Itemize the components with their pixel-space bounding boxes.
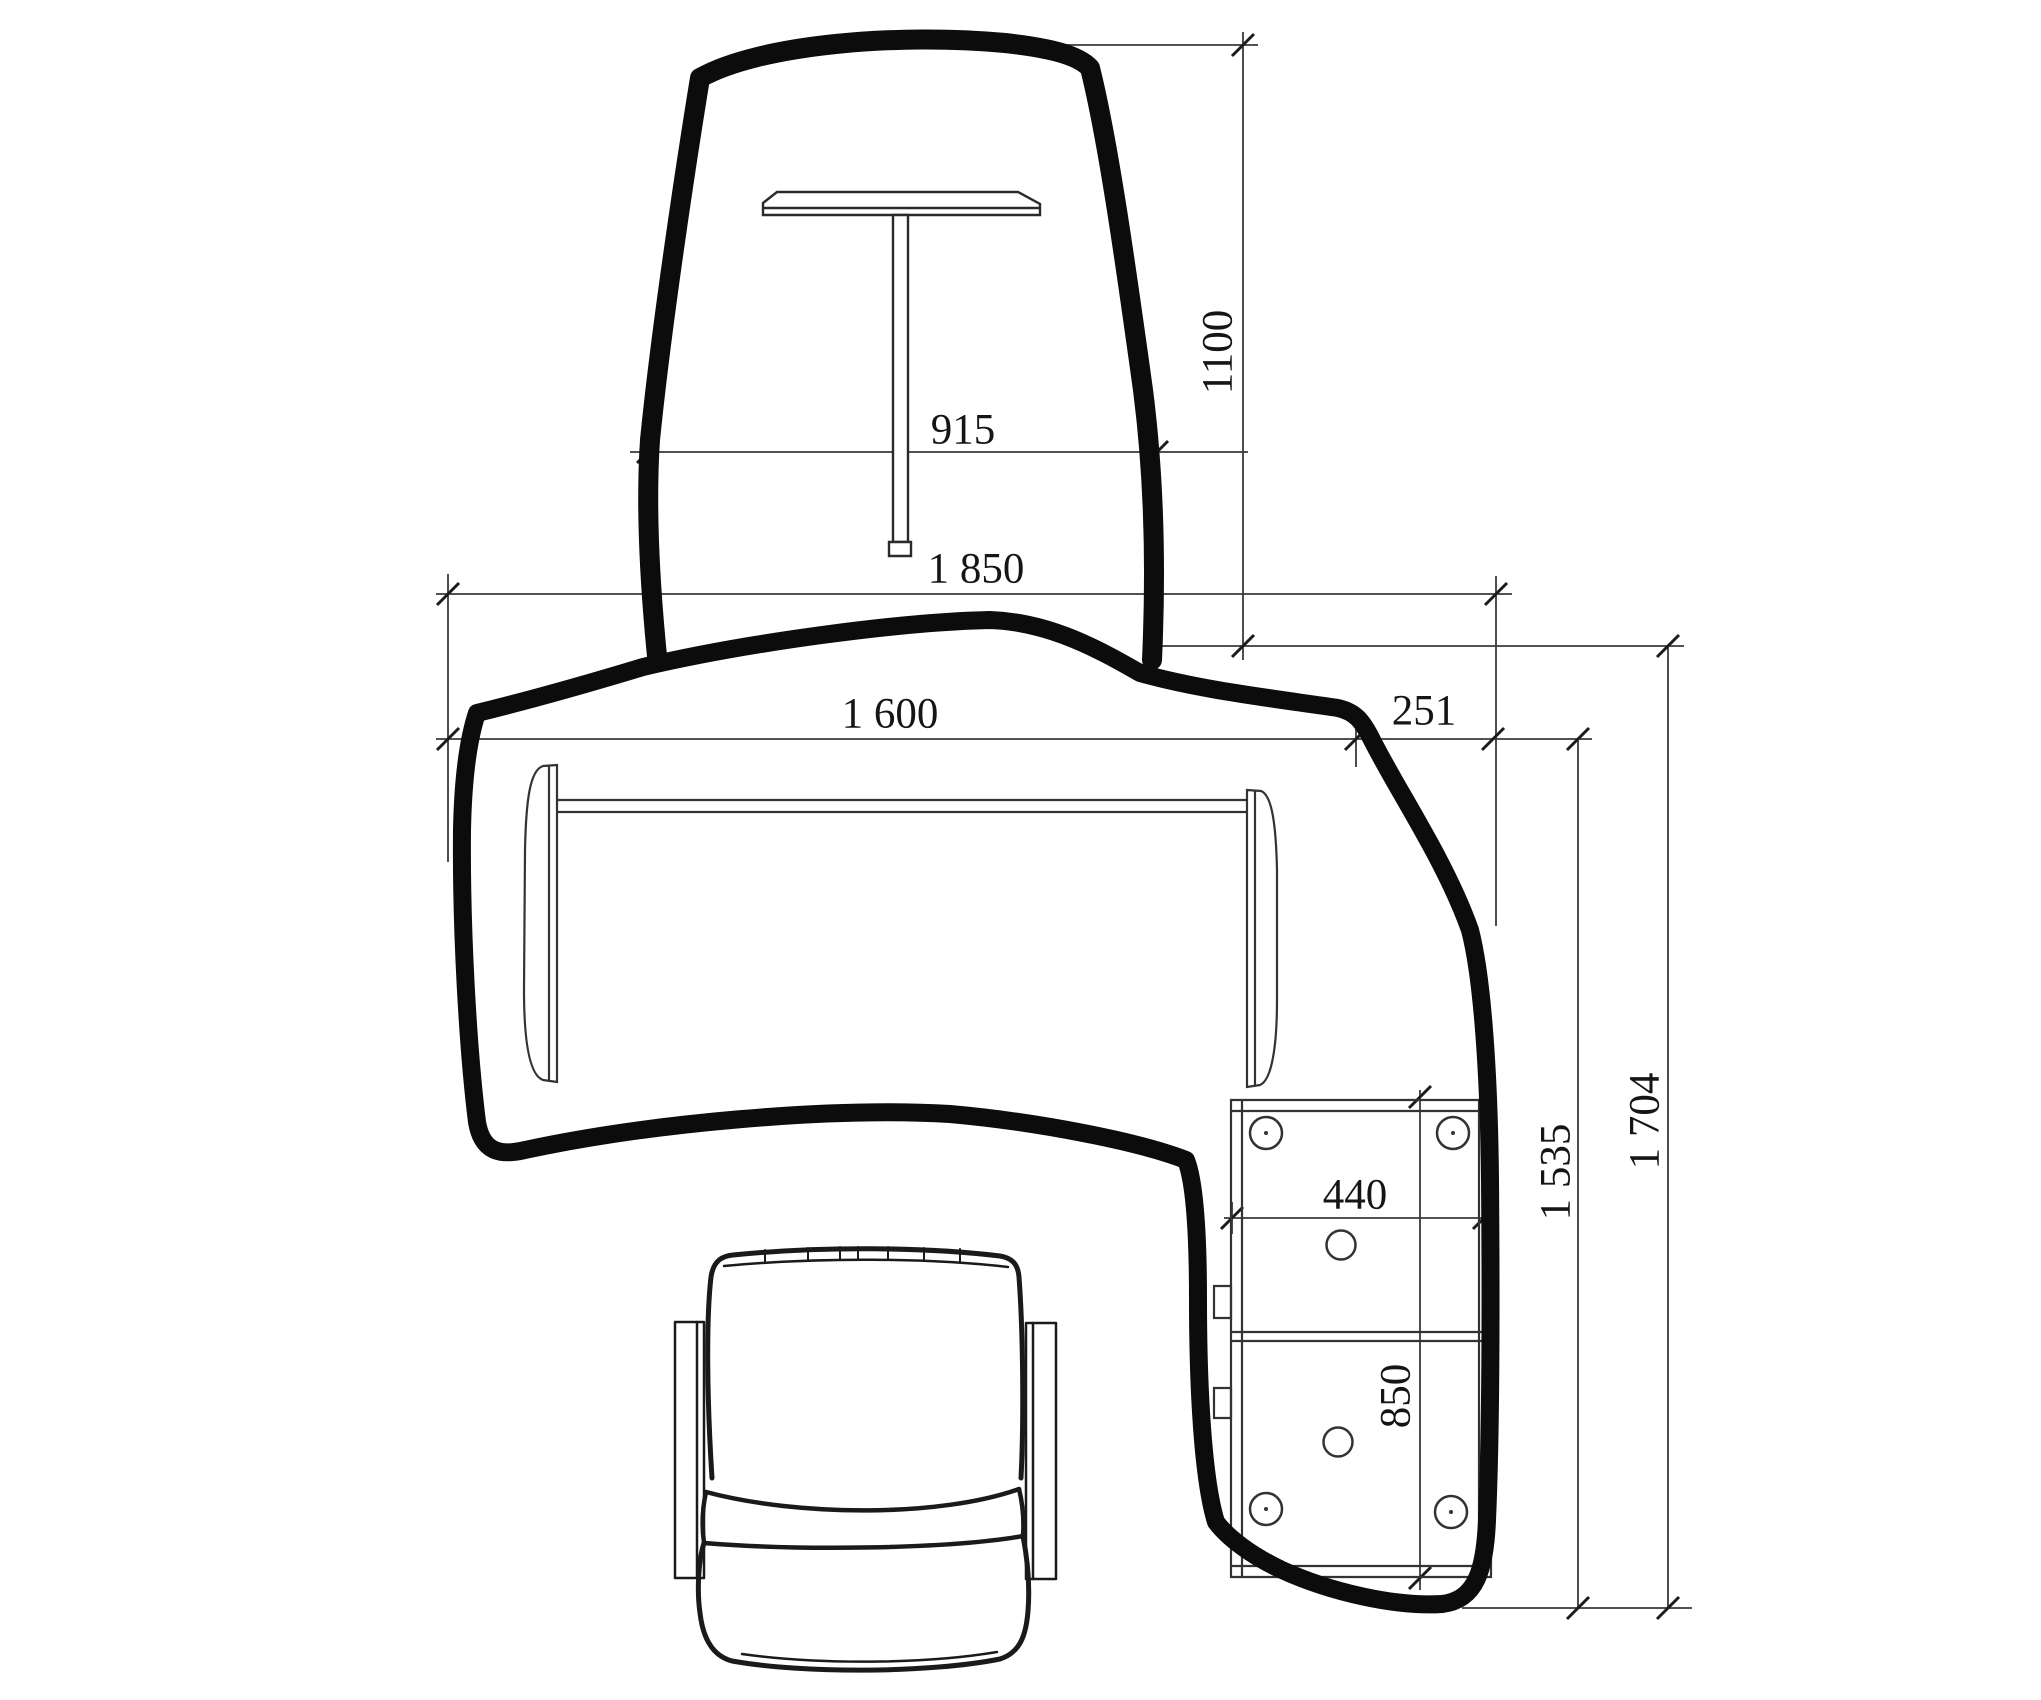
backrest-seam (724, 1260, 1008, 1267)
dimension-lines (436, 32, 1692, 1608)
left-leg-pad (524, 765, 557, 1082)
drawer-hole (1327, 1231, 1356, 1260)
monitor-stand (763, 192, 1040, 556)
dim-label-screen-width: 915 (931, 409, 996, 452)
dim-label-return-offset: 251 (1392, 690, 1457, 733)
armrest-right (1026, 1323, 1056, 1579)
dim-label-pedestal-depth: 850 (1375, 1364, 1418, 1429)
stand-foot (889, 542, 911, 556)
desk-understructure (524, 765, 1277, 1087)
hinge (1214, 1388, 1231, 1418)
stand-bar (763, 192, 1040, 215)
dim-label-overall-width: 1 850 (928, 548, 1025, 591)
lumbar-cushion (703, 1489, 1024, 1548)
dim-label-screen-height: 1100 (1197, 310, 1240, 394)
right-leg-pad (1247, 790, 1277, 1087)
chair-seat (698, 1536, 1028, 1670)
armrest-left (675, 1322, 704, 1578)
drawer-hole (1324, 1428, 1353, 1457)
technical-drawing-desk-plan: 1100 915 1 850 1 600 251 440 850 1 535 1… (0, 0, 2041, 1700)
drawing-canvas (0, 0, 2041, 1700)
dim-label-desk-width: 1 600 (842, 693, 939, 736)
chair-backrest (708, 1249, 1023, 1478)
hinge (1214, 1286, 1231, 1318)
dim-label-overall-depth: 1 704 (1624, 1073, 1667, 1170)
seat-seam (742, 1652, 997, 1662)
chair (675, 1247, 1056, 1670)
stand-stem (893, 215, 908, 542)
dim-label-return-depth: 1 535 (1535, 1124, 1578, 1221)
dim-label-pedestal-width: 440 (1323, 1174, 1388, 1217)
